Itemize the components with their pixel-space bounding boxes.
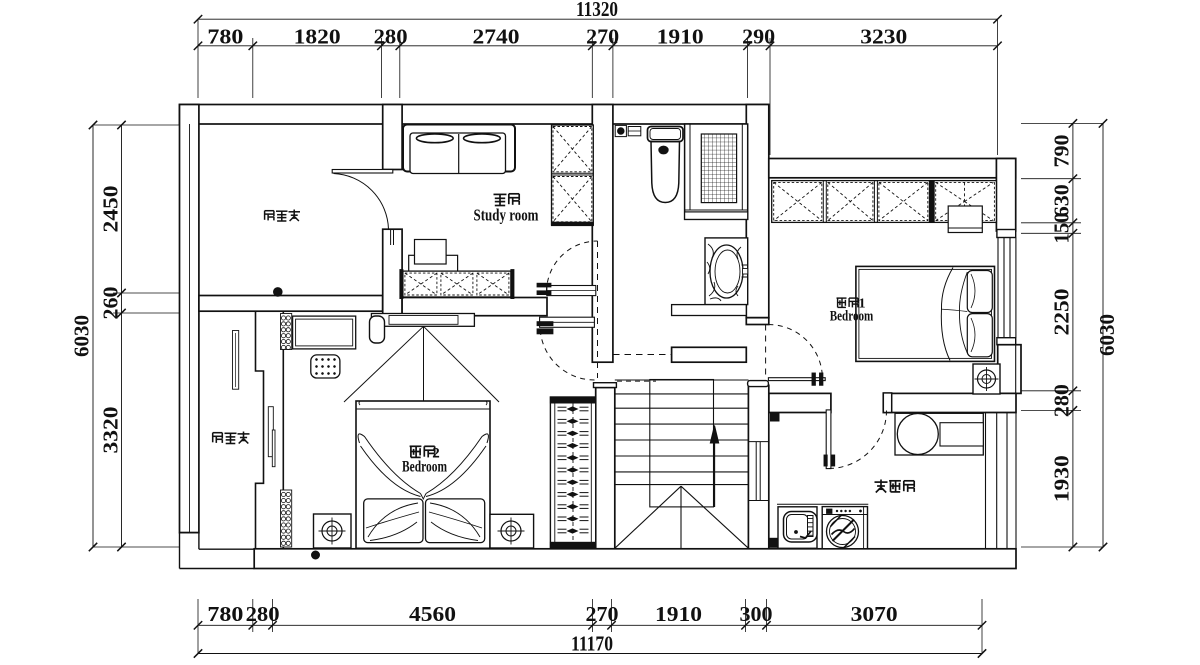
svg-text:300: 300 bbox=[740, 602, 773, 626]
svg-text:280: 280 bbox=[374, 25, 408, 49]
svg-text:280: 280 bbox=[246, 602, 280, 626]
svg-text:6030: 6030 bbox=[70, 315, 94, 357]
svg-text:2250: 2250 bbox=[1050, 289, 1074, 336]
svg-text:Bedroom: Bedroom bbox=[402, 459, 447, 476]
svg-text:Study room: Study room bbox=[474, 206, 539, 225]
svg-text:Bedroom: Bedroom bbox=[830, 309, 874, 325]
svg-text:150: 150 bbox=[1050, 213, 1074, 244]
svg-text:780: 780 bbox=[207, 25, 243, 49]
svg-text:6030: 6030 bbox=[1095, 314, 1119, 356]
svg-text:260: 260 bbox=[99, 287, 123, 320]
svg-text:630: 630 bbox=[1050, 184, 1074, 217]
svg-text:3070: 3070 bbox=[851, 602, 898, 626]
svg-text:1910: 1910 bbox=[655, 602, 702, 626]
svg-text:11170: 11170 bbox=[571, 632, 613, 656]
svg-text:11320: 11320 bbox=[576, 0, 618, 21]
svg-text:1820: 1820 bbox=[294, 25, 341, 49]
svg-text:270: 270 bbox=[586, 25, 619, 49]
svg-text:3320: 3320 bbox=[99, 407, 123, 454]
svg-text:280: 280 bbox=[1050, 384, 1074, 417]
svg-text:780: 780 bbox=[207, 602, 243, 626]
svg-text:1930: 1930 bbox=[1050, 455, 1074, 502]
svg-text:790: 790 bbox=[1050, 135, 1074, 168]
svg-text:290: 290 bbox=[742, 25, 775, 49]
svg-text:270: 270 bbox=[586, 602, 619, 626]
svg-text:3230: 3230 bbox=[860, 25, 907, 49]
svg-text:2740: 2740 bbox=[473, 25, 520, 49]
svg-text:1910: 1910 bbox=[657, 25, 704, 49]
svg-text:4560: 4560 bbox=[409, 602, 456, 626]
svg-text:2450: 2450 bbox=[99, 186, 123, 233]
